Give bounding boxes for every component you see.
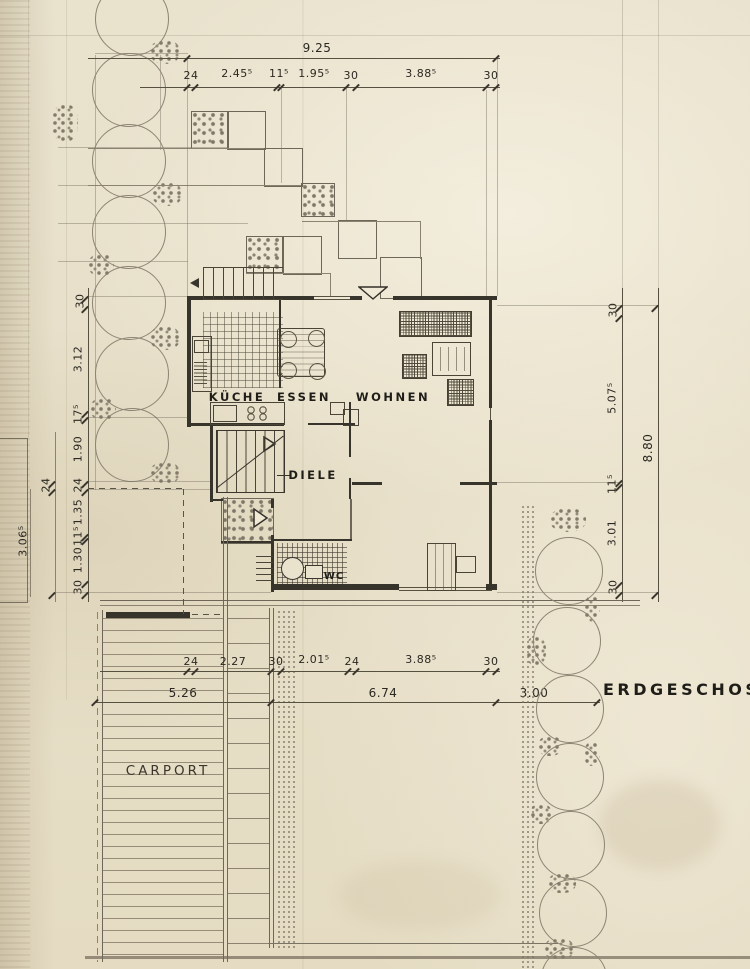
dim-label: 3.88⁵ [405, 653, 436, 666]
terrace-edge [100, 605, 640, 606]
witness-line [346, 87, 347, 220]
wall-entrance-jamb [271, 499, 274, 508]
dining-chair [309, 363, 326, 380]
witness-line [497, 482, 622, 483]
dim-line-top-total [88, 58, 500, 59]
dim-label: 24 [184, 655, 199, 668]
room-label-carport: CARPORT [126, 763, 210, 779]
wall-porch-top [210, 499, 223, 501]
dim-label: 24 [40, 478, 53, 493]
neighbour-building [0, 438, 28, 603]
dim-label: 2.01⁵ [298, 653, 329, 666]
dim-label: 24 [345, 655, 360, 668]
witness-line [88, 481, 210, 482]
roof-overhang-dashed [88, 488, 183, 489]
wall-interior-thin [350, 499, 352, 541]
roof-overhang-dashed [192, 614, 223, 615]
dim-label: 30 [344, 69, 359, 82]
dim-line-left-chain [88, 288, 89, 602]
dining-chair [308, 330, 325, 347]
dim-line-bottom-chain [100, 671, 500, 672]
paving-square [301, 183, 335, 217]
dim-label: 2.45⁵ [221, 67, 252, 80]
wall-left [187, 296, 191, 427]
dim-label: 30 [484, 69, 499, 82]
shrub-pebbles [52, 104, 78, 142]
dim-label: 1.35 [72, 499, 85, 526]
stool [447, 379, 474, 406]
floor-plan-sheet: 9.25 24 2.45⁵ 11⁵ 1.95⁵ 30 3.88⁵ 30 30 3… [0, 0, 750, 969]
dim-label: 17⁵ [72, 404, 85, 424]
dim-label: 30 [74, 294, 87, 309]
room-label-essen: ESSEN [277, 390, 331, 404]
shrub-pebbles [538, 736, 562, 756]
wardrobe [427, 543, 456, 591]
stove-burners [244, 405, 270, 421]
paving-line [302, 221, 420, 222]
kitchen-sink-2 [213, 405, 237, 422]
dim-label: 30 [269, 655, 284, 668]
shrub-pebbles [544, 938, 574, 960]
paving-square [227, 111, 266, 150]
shrub-pebbles [548, 873, 576, 893]
shrub-pebbles [584, 742, 600, 766]
witness-line [497, 58, 498, 296]
dim-label: 11⁵ [269, 67, 289, 80]
gravel-strip [521, 505, 536, 969]
wall-interior [271, 539, 352, 541]
roof-overhang-dashed [183, 489, 184, 614]
wall-porch-bottom [221, 541, 273, 543]
entrance-arrow-icon [252, 507, 269, 529]
dim-label: 1.90 [72, 436, 85, 463]
witness-line [281, 87, 282, 183]
paving-square [191, 111, 229, 149]
dim-label: 1.30 [72, 547, 85, 574]
witness-line [88, 296, 187, 297]
stool [402, 354, 427, 379]
terrace-south-edge [268, 943, 558, 944]
sofa [399, 311, 472, 337]
dim-label: 30 [607, 580, 620, 595]
dim-label: 9.25 [303, 41, 332, 55]
shrub-pebbles [88, 254, 114, 276]
wall-left-lower [210, 423, 213, 502]
paving-line [330, 273, 331, 297]
dim-label: 24 [72, 478, 85, 493]
paper-blotch [340, 860, 500, 930]
witness-line [497, 305, 658, 306]
shrub-pebbles [150, 326, 180, 350]
shrub-pebbles [150, 40, 180, 64]
dim-label: 6.74 [369, 686, 398, 700]
tree [92, 53, 166, 127]
kitchen-floor-tiles [203, 312, 283, 388]
dim-label: 2.27 [220, 655, 247, 668]
paper-blotch [600, 780, 720, 870]
dim-label: 3.12 [72, 346, 85, 373]
wall-right [489, 300, 492, 408]
dim-label: 11⁵ [606, 474, 619, 494]
paving-square [338, 220, 377, 259]
stair-direction-arrow-icon [190, 278, 199, 288]
fold-line [302, 0, 304, 969]
shrub-pebbles [550, 508, 586, 532]
wall-top [393, 296, 497, 300]
dim-label: 5.07⁵ [606, 382, 619, 413]
tree [535, 537, 603, 605]
dim-line-left-outer [55, 432, 56, 602]
coffee-table [432, 342, 471, 376]
dim-label: 3.01 [606, 520, 619, 547]
shrub-pebbles [584, 596, 600, 622]
radiator [256, 556, 273, 586]
room-label-wc: WC [324, 571, 344, 582]
dim-label: 11⁵ [72, 526, 85, 546]
dining-chair [280, 362, 297, 379]
dim-label: 30 [484, 655, 499, 668]
carport-edge-rough [97, 612, 98, 962]
dim-line-right-total [658, 288, 659, 602]
section-line [622, 0, 623, 290]
dim-label: 5.26 [169, 686, 198, 700]
wall-interior [349, 478, 351, 499]
paving-line [88, 148, 264, 149]
wall-right [489, 420, 492, 590]
carport-edge [223, 497, 224, 962]
wall-interior [349, 402, 351, 457]
paving-square [283, 236, 322, 275]
washbasin [281, 557, 304, 580]
room-label-diele: DIELE [288, 468, 337, 482]
window-top [314, 299, 350, 300]
witness-line [187, 58, 188, 296]
page-title: ERDGESCHOSS [603, 680, 750, 699]
tree [536, 675, 604, 743]
dim-line-right-chain [622, 288, 623, 602]
side-table [456, 556, 476, 573]
carport-decking [103, 618, 224, 962]
room-label-kueche: KÜCHE [209, 390, 265, 404]
dim-label: 3.88⁵ [405, 67, 436, 80]
fold-line [28, 0, 29, 438]
paving-line [88, 185, 301, 186]
dim-label: 8.80 [641, 434, 655, 463]
paving-square [264, 148, 303, 187]
dim-label: 1.95⁵ [298, 67, 329, 80]
exterior-stair [203, 267, 283, 300]
shrub-pebbles [526, 636, 546, 666]
kitchen-sink [194, 340, 209, 353]
wall-bottom [271, 584, 399, 590]
shrub-pebbles [530, 804, 552, 824]
wall-interior [308, 423, 355, 425]
window-top [314, 296, 350, 297]
dim-label: 30 [72, 580, 85, 595]
witness-line [88, 417, 187, 418]
window-right [490, 408, 491, 420]
wall-interior [460, 482, 497, 485]
carport-edge [102, 610, 103, 962]
kitchen-appliance [194, 362, 207, 386]
section-line [658, 0, 659, 290]
room-label-wohnen: WOHNEN [356, 390, 430, 404]
garden-wall [106, 612, 190, 618]
paving-line [420, 221, 421, 259]
dining-chair [280, 331, 297, 348]
dim-label: 30 [607, 303, 620, 318]
dim-label: 24 [184, 69, 199, 82]
terrace-door-arrow-icon [358, 286, 388, 301]
toilet [305, 565, 323, 579]
dim-line-left-outer2 [30, 489, 31, 597]
wall-interior [352, 482, 382, 485]
witness-line [486, 90, 487, 296]
